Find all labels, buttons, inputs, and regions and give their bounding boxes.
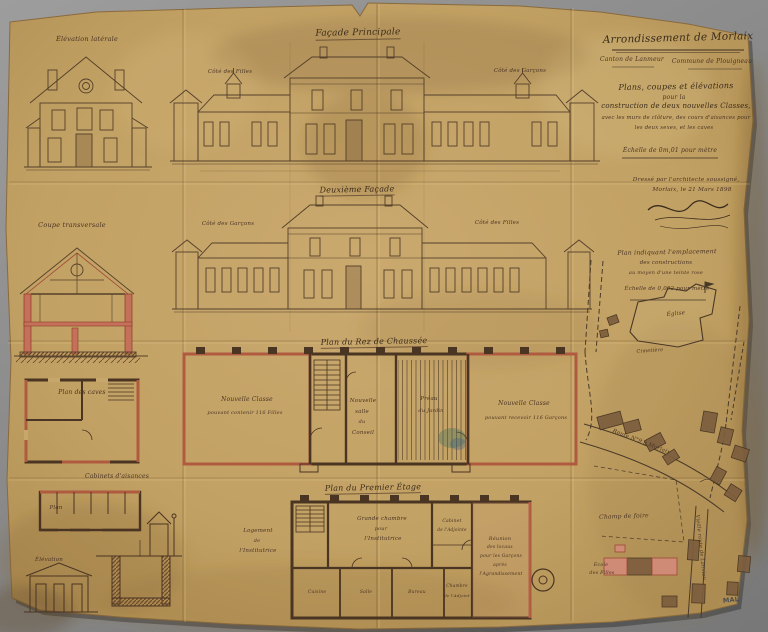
aisances-elevation-label: Élévation [35,558,63,564]
siteplan-ecole-label-line1: École [594,564,608,569]
etage-title: Plan du Premier Étage [325,483,421,495]
rdc-right-room-line2: pouvant recevoir 116 Garçons [485,416,567,421]
siteplan-header-line1: Plan indiquant l'emplacement [617,249,716,257]
siteplan-eglise-label: Église [667,311,686,318]
etage-right-line5: l'Agrandissement [480,573,523,578]
titleblock-signed-line1: Dressé par l'architecte soussigné, [633,178,740,184]
plan-caves-title: Plan des caves [58,390,105,396]
etage-right-line1: Réunion [489,537,511,542]
rdc-conseil-line2: salle [355,410,369,416]
etage-cabinet-line2: de l'Adjointe [437,528,466,532]
facade-2-left-label: Côté des Garçons [202,222,254,228]
handwritten-labels: Élévation latérale Coupe transversale Pl… [0,0,768,632]
titleblock-object-line4: avec les murs de clôture, des cours d'ai… [602,116,751,121]
etage-room4-label-line1: Chambre [446,585,467,589]
etage-right-line3: pour les Garçons [480,555,522,560]
coupe-transversale-title: Coupe transversale [38,222,106,229]
titleblock-canton: Canton de Lanmeur [600,57,664,63]
titleblock-object-line5: les deux sexes, et les caves [635,126,714,131]
elevation-laterale-title: Élévation latérale [56,36,118,43]
scanned-architectural-drawing: Élévation latérale Coupe transversale Pl… [0,0,768,632]
siteplan-vieille-route-label: Vieille route de Lannion [694,515,706,581]
etage-room3-label: Bureau [408,591,426,596]
siteplan-scale: Échelle de 0,002 pour mètre [624,287,709,293]
etage-chambre-line2: pour [375,527,388,532]
facade-2-right-label: Côté des Filles [475,221,519,227]
etage-chambre-line3: l'Institutrice [364,537,401,543]
rdc-left-room-line1: Nouvelle Classe [221,397,273,403]
etage-note-line3: l'Institutrice [239,549,276,555]
titleblock-signed-line2: Morlaix, le 21 Mars 1898 [652,188,731,194]
rdc-right-room-line1: Nouvelle Classe [498,401,550,407]
siteplan-ecole-label-line2: des Filles [589,572,614,577]
etage-chambre-line1: Grande chambre [357,517,407,523]
facade-principale-title: Façade Principale [315,28,400,40]
rdc-conseil-line1: Nouvelle [350,399,376,405]
titleblock-scale: Échelle de 0m,01 pour mètre [623,148,717,154]
rdc-preau-line1: Préau [420,397,437,403]
siteplan-cimetiere-label: Cimetière [636,348,663,355]
etage-note-line2: de [254,539,261,544]
etage-right-line4: après [493,564,507,569]
siteplan-header-line2: des constructions [640,261,693,267]
etage-right-line2: des locaux [487,546,513,551]
facade-principale-left-label: Côté des Filles [208,70,252,76]
rdc-conseil-line3: du [359,420,366,425]
siteplan-champ-label: Champ de foire [599,513,649,521]
etage-note-line1: Logement [243,529,273,535]
aisances-plan-label: Plan [49,506,62,512]
facade-principale-right-label: Côté des Garçons [494,69,546,75]
archive-stamp: MAL [723,596,740,604]
titleblock-arrondissement: Arrondissement de Morlaix [603,31,754,45]
titleblock-object-line2: pour la [663,95,686,101]
rdc-preau-line2: du Jardin [418,409,443,414]
titleblock-object-line1: Plans, coupes et élévations [618,82,733,92]
etage-room1-label: Cuisine [308,591,327,596]
siteplan-route-label: Route N°9 à Morlaix [611,429,670,456]
facade-2-title: Deuxième Façade [319,185,394,196]
titleblock-object-line3: construction de deux nouvelles Classes, [601,103,750,110]
rdc-conseil-line4: Conseil [352,431,374,437]
siteplan-header-line3: au moyen d'une teinte rose [629,271,703,276]
etage-room2-label: Salle [360,591,372,596]
etage-cabinet-line1: Cabinet [442,520,461,525]
rdc-left-room-line2: pouvant contenir 116 Filles [207,411,282,416]
rdc-title: Plan du Rez de Chaussée [321,337,428,349]
titleblock-commune: Commune de Plouigneau [672,59,752,65]
etage-room4-label-line2: de l'Adjoint [444,594,470,598]
cabinets-aisances-title: Cabinets d'aisances [85,474,149,480]
